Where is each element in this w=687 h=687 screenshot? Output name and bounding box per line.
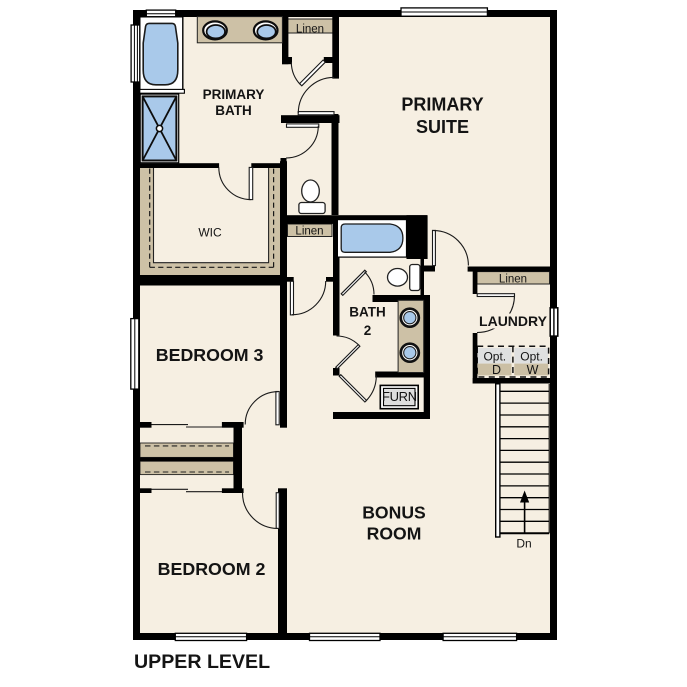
svg-text:Linen: Linen: [295, 226, 323, 238]
svg-text:WIC: WIC: [198, 226, 222, 240]
svg-text:PRIMARY: PRIMARY: [203, 87, 265, 102]
svg-text:BEDROOM 2: BEDROOM 2: [158, 559, 266, 579]
svg-text:Opt.: Opt.: [520, 349, 543, 363]
svg-text:Opt.: Opt.: [483, 349, 506, 363]
svg-text:BATH: BATH: [215, 103, 252, 118]
svg-text:Dn: Dn: [516, 537, 531, 551]
svg-text:BEDROOM 3: BEDROOM 3: [156, 345, 264, 365]
svg-text:D: D: [492, 363, 501, 377]
svg-text:W: W: [527, 363, 539, 377]
svg-text:SUITE: SUITE: [416, 117, 469, 137]
svg-text:PRIMARY: PRIMARY: [401, 95, 483, 115]
svg-text:ROOM: ROOM: [367, 524, 422, 544]
svg-text:UPPER LEVEL: UPPER LEVEL: [134, 651, 270, 673]
svg-text:Linen: Linen: [296, 23, 324, 35]
svg-text:Linen: Linen: [499, 273, 527, 285]
svg-text:BONUS: BONUS: [362, 503, 426, 523]
svg-text:LAUNDRY: LAUNDRY: [479, 313, 548, 329]
svg-text:BATH: BATH: [349, 305, 386, 320]
svg-text:2: 2: [364, 323, 372, 338]
svg-text:FURN: FURN: [382, 389, 417, 404]
